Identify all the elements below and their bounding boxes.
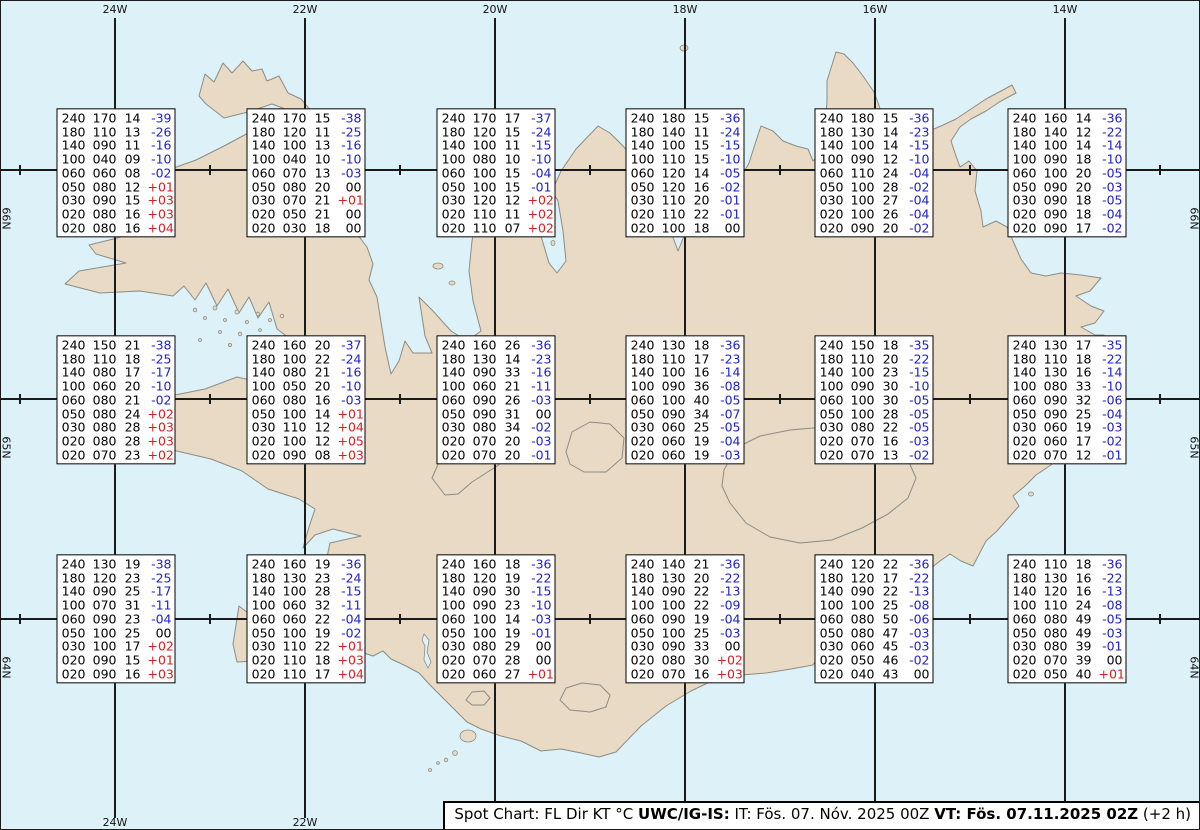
wind-direction: 080 [850,612,875,626]
flight-level: 140 [819,366,844,380]
flight-level: 020 [441,434,466,448]
wind-speed-kt: 15 [693,152,710,166]
wind-direction: 100 [472,180,497,194]
wind-speed-kt: 19 [124,557,141,571]
temperature-c: +05 [338,434,362,448]
wind-direction: 140 [661,557,686,571]
flight-level: 100 [61,152,86,166]
station-data-row: 18011017-23 [630,352,741,366]
temperature-c: -04 [148,612,172,626]
temperature-c: -35 [906,338,930,352]
temperature-c: -16 [338,139,362,153]
station-data-row: 02009017-02 [1012,221,1123,235]
wind-speed-kt: 11 [124,139,141,153]
wind-speed-kt: 20 [882,221,899,235]
wind-speed-kt: 11 [693,125,710,139]
flight-level: 060 [61,612,86,626]
station-data-row: 14012016-13 [1012,585,1123,599]
station-data-row: 06009032-06 [1012,393,1123,407]
flight-level: 060 [819,393,844,407]
station-data-row: 02009008+03 [251,448,362,462]
temperature-c: 00 [338,207,362,221]
flight-level: 180 [819,352,844,366]
flight-level: 020 [819,653,844,667]
station-data-row: 02011007+02 [441,221,552,235]
station-data-row: 10009030-10 [819,379,930,393]
station-data-row: 02008030+02 [630,653,741,667]
temperature-c: -05 [1099,612,1123,626]
flight-level: 100 [1012,598,1037,612]
wind-speed-kt: 22 [693,598,710,612]
wind-speed-kt: 20 [1075,166,1092,180]
temperature-c: -04 [906,166,930,180]
temperature-c: 00 [1099,653,1123,667]
station-data-row: 02010012+05 [251,434,362,448]
wind-direction: 100 [282,626,307,640]
flight-level: 030 [630,640,655,654]
temperature-c: -04 [717,612,741,626]
station-data-row: 0200702800 [441,653,552,667]
flight-level: 140 [1012,585,1037,599]
station-data-row: 03008028+03 [61,421,172,435]
wind-direction: 090 [661,407,686,421]
wind-speed-kt: 39 [1075,653,1092,667]
wind-speed-kt: 40 [693,393,710,407]
wind-direction: 180 [850,111,875,125]
wind-direction: 060 [92,379,117,393]
flight-level: 030 [251,421,276,435]
wind-speed-kt: 17 [124,640,141,654]
station-data-row: 03009018-05 [1012,194,1123,208]
station-data-row: 14009033-16 [441,366,552,380]
temperature-c: -36 [717,111,741,125]
temperature-c: -03 [1099,626,1123,640]
wind-speed-kt: 19 [693,612,710,626]
wind-speed-kt: 16 [1075,571,1092,585]
wind-speed-kt: 19 [504,571,521,585]
wind-direction: 130 [472,352,497,366]
flight-level: 020 [61,434,86,448]
wind-speed-kt: 25 [124,626,141,640]
wind-direction: 090 [472,585,497,599]
station-data-row: 18014011-24 [630,125,741,139]
wind-direction: 140 [1043,125,1068,139]
wind-direction: 090 [472,598,497,612]
flight-level: 030 [251,194,276,208]
wind-direction: 080 [282,393,307,407]
flight-level: 100 [441,152,466,166]
wind-direction: 130 [1043,338,1068,352]
station-data-row: 24016019-36 [251,557,362,571]
flight-level: 100 [61,379,86,393]
temperature-c: -26 [148,125,172,139]
station-data-row: 02009016+03 [61,667,172,681]
wind-direction: 080 [1043,640,1068,654]
temperature-c: -38 [338,111,362,125]
flight-level: 050 [630,407,655,421]
temperature-c: +01 [1099,667,1123,681]
wind-direction: 070 [92,598,117,612]
wind-speed-kt: 16 [1075,585,1092,599]
flight-level: 050 [61,180,86,194]
temperature-c: -05 [1099,166,1123,180]
wind-direction: 100 [282,585,307,599]
flight-level: 060 [251,612,276,626]
flight-level: 240 [61,111,86,125]
wind-direction: 040 [850,667,875,681]
flight-level: 030 [630,421,655,435]
wind-speed-kt: 15 [693,111,710,125]
wind-direction: 070 [472,434,497,448]
wind-direction: 150 [92,338,117,352]
station-data-row: 05010028-02 [819,180,930,194]
wind-direction: 090 [1043,407,1068,421]
footer-segment-1: UWC/IG-IS: [638,805,730,823]
wind-direction: 070 [850,448,875,462]
wind-direction: 090 [1043,221,1068,235]
wind-direction: 130 [850,125,875,139]
station-data-row: 05010028-05 [819,407,930,421]
station-data-row: 05009020-03 [1012,180,1123,194]
station-data-row: 24017015-38 [251,111,362,125]
station-data-row: 02011017+04 [251,667,362,681]
wind-direction: 180 [661,111,686,125]
station-data-row: 05009025-04 [1012,407,1123,421]
temperature-c: -10 [528,598,552,612]
station-data-row: 14010015-15 [630,139,741,153]
temperature-c: 00 [528,407,552,421]
station-data-row: 18011018-25 [61,352,172,366]
wind-direction: 120 [92,571,117,585]
wind-direction: 080 [92,180,117,194]
flight-level: 060 [61,166,86,180]
wind-speed-kt: 24 [1075,598,1092,612]
wind-direction: 090 [661,379,686,393]
flight-level: 020 [1012,667,1037,681]
wind-direction: 100 [850,139,875,153]
temperature-c: -22 [906,352,930,366]
flight-level: 050 [1012,407,1037,421]
station-data-row: 02005046-02 [819,653,930,667]
wind-speed-kt: 14 [882,125,899,139]
temperature-c: -22 [906,571,930,585]
temperature-c: -25 [148,571,172,585]
wind-speed-kt: 31 [124,598,141,612]
station-data-row: 10010025-08 [819,598,930,612]
wind-speed-kt: 25 [882,598,899,612]
station-data-row: 02007012-01 [1012,448,1123,462]
station-box-14W-66N: 24016014-3618014012-2214010014-141000901… [1008,108,1127,237]
wind-direction: 080 [92,366,117,380]
wind-direction: 090 [1043,207,1068,221]
temperature-c: -22 [1099,571,1123,585]
station-data-row: 06009023-04 [61,612,172,626]
wind-direction: 080 [1043,612,1068,626]
wind-speed-kt: 25 [1075,407,1092,421]
flight-level: 140 [1012,366,1037,380]
wind-direction: 100 [850,407,875,421]
wind-speed-kt: 26 [882,207,899,221]
flight-level: 100 [251,379,276,393]
station-data-row: 18011013-26 [61,125,172,139]
flight-level: 050 [441,626,466,640]
wind-speed-kt: 11 [314,125,331,139]
wind-speed-kt: 30 [504,585,521,599]
station-data-row: 03006019-03 [1012,421,1123,435]
flight-level: 030 [630,194,655,208]
wind-speed-kt: 10 [504,152,521,166]
wind-speed-kt: 17 [1075,338,1092,352]
wind-speed-kt: 19 [314,626,331,640]
station-data-row: 05010015-01 [441,180,552,194]
wind-direction: 060 [1043,434,1068,448]
wind-direction: 090 [850,379,875,393]
station-data-row: 14008021-16 [251,366,362,380]
wind-direction: 090 [472,366,497,380]
wind-direction: 090 [1043,194,1068,208]
wind-speed-kt: 25 [693,626,710,640]
station-box-16W-64N: 24012022-3618012017-2214009022-131001002… [815,554,934,683]
station-data-row: 03007021+01 [251,194,362,208]
temperature-c: +03 [148,207,172,221]
temperature-c: +04 [148,221,172,235]
wind-direction: 090 [661,585,686,599]
station-data-row: 18012023-25 [61,571,172,585]
temperature-c: +04 [338,421,362,435]
temperature-c: -24 [338,352,362,366]
flight-level: 020 [1012,207,1037,221]
temperature-c: -15 [338,585,362,599]
wind-speed-kt: 12 [882,152,899,166]
station-data-row: 24017014-39 [61,111,172,125]
flight-level: 140 [630,585,655,599]
wind-speed-kt: 17 [1075,434,1092,448]
wind-direction: 090 [472,393,497,407]
station-data-row: 14009025-17 [61,585,172,599]
temperature-c: -03 [338,166,362,180]
flight-level: 180 [251,125,276,139]
wind-speed-kt: 13 [124,125,141,139]
wind-direction: 070 [1043,653,1068,667]
wind-speed-kt: 29 [504,640,521,654]
wind-direction: 080 [472,152,497,166]
wind-direction: 090 [92,585,117,599]
wind-direction: 090 [92,653,117,667]
wind-speed-kt: 22 [314,352,331,366]
station-data-row: 10009023-10 [441,598,552,612]
wind-speed-kt: 47 [882,626,899,640]
wind-speed-kt: 22 [882,585,899,599]
wind-direction: 100 [472,166,497,180]
flight-level: 020 [1012,448,1037,462]
wind-direction: 120 [850,557,875,571]
station-data-row: 06009026-03 [441,393,552,407]
temperature-c: -08 [1099,598,1123,612]
station-data-row: 0300903300 [630,640,741,654]
wind-direction: 060 [661,434,686,448]
temperature-c: -01 [1099,448,1123,462]
wind-direction: 100 [472,612,497,626]
wind-speed-kt: 32 [1075,393,1092,407]
wind-speed-kt: 20 [314,379,331,393]
chart-legend-bar: Spot Chart: FL Dir KT °C UWC/IG-IS: IT: … [443,801,1200,830]
flight-level: 020 [251,221,276,235]
flight-level: 240 [819,557,844,571]
wind-direction: 110 [661,352,686,366]
temperature-c: 00 [717,221,741,235]
flight-level: 050 [251,180,276,194]
wind-speed-kt: 08 [314,448,331,462]
flight-level: 140 [441,585,466,599]
wind-speed-kt: 16 [693,366,710,380]
flight-level: 020 [251,653,276,667]
station-data-row: 06006022-04 [251,612,362,626]
wind-speed-kt: 18 [882,338,899,352]
wind-speed-kt: 32 [314,598,331,612]
temperature-c: +01 [338,640,362,654]
flight-level: 140 [630,366,655,380]
wind-speed-kt: 11 [504,139,521,153]
wind-direction: 100 [661,598,686,612]
flight-level: 050 [819,626,844,640]
wind-speed-kt: 20 [504,434,521,448]
flight-level: 180 [819,125,844,139]
wind-direction: 110 [282,421,307,435]
wind-speed-kt: 14 [504,612,521,626]
station-data-row: 18012011-25 [251,125,362,139]
station-data-row: 0201001800 [630,221,741,235]
flight-level: 240 [630,111,655,125]
temperature-c: -11 [148,598,172,612]
station-data-row: 10006021-11 [441,379,552,393]
flight-level: 060 [1012,166,1037,180]
wind-speed-kt: 20 [314,180,331,194]
station-data-row: 0200301800 [251,221,362,235]
flight-level: 140 [441,366,466,380]
wind-speed-kt: 22 [882,421,899,435]
station-data-row: 10006020-10 [61,379,172,393]
temperature-c: -16 [148,139,172,153]
wind-direction: 090 [92,194,117,208]
wind-speed-kt: 13 [882,448,899,462]
wind-direction: 090 [850,221,875,235]
temperature-c: -11 [528,379,552,393]
temperature-c: 00 [528,653,552,667]
station-data-row: 14009011-16 [61,139,172,153]
station-box-16W-65N: 24015018-3518011020-2214010023-151000903… [815,335,934,464]
flight-level: 100 [441,598,466,612]
station-data-row: 10006032-11 [251,598,362,612]
station-box-14W-64N: 24011018-3618013016-2214012016-131001102… [1008,554,1127,683]
temperature-c: -14 [717,366,741,380]
wind-direction: 130 [1043,571,1068,585]
flight-level: 180 [61,352,86,366]
temperature-c: -23 [906,125,930,139]
temperature-c: -05 [717,166,741,180]
wind-speed-kt: 36 [693,379,710,393]
wind-speed-kt: 21 [124,338,141,352]
temperature-c: -01 [528,180,552,194]
wind-direction: 130 [661,338,686,352]
station-data-row: 14010016-14 [630,366,741,380]
wind-speed-kt: 40 [1075,667,1092,681]
station-box-20W-64N: 24016018-3618012019-2214009030-151000902… [437,554,556,683]
temperature-c: -03 [717,448,741,462]
wind-speed-kt: 33 [504,366,521,380]
wind-direction: 100 [282,407,307,421]
flight-level: 030 [61,421,86,435]
station-box-14W-65N: 24013017-3518011018-2214013016-141000803… [1008,335,1127,464]
temperature-c: -10 [148,379,172,393]
wind-direction: 150 [850,338,875,352]
flight-level: 100 [630,152,655,166]
wind-direction: 090 [661,640,686,654]
flight-level: 050 [819,407,844,421]
temperature-c: -38 [148,557,172,571]
flight-level: 060 [251,393,276,407]
station-box-24W-66N: 24017014-3918011013-2614009011-161000400… [57,108,176,237]
station-data-row: 18013023-24 [251,571,362,585]
temperature-c: -23 [528,352,552,366]
temperature-c: -08 [906,598,930,612]
flight-level: 180 [441,125,466,139]
temperature-c: -04 [906,194,930,208]
wind-direction: 130 [1043,366,1068,380]
wind-speed-kt: 10 [314,152,331,166]
temperature-c: -13 [906,585,930,599]
flight-level: 100 [251,598,276,612]
wind-speed-kt: 20 [882,352,899,366]
wind-speed-kt: 20 [124,379,141,393]
flight-level: 020 [61,448,86,462]
station-data-row: 05010019-01 [441,626,552,640]
wind-direction: 130 [661,571,686,585]
wind-direction: 100 [92,640,117,654]
flight-level: 020 [819,221,844,235]
flight-level: 060 [61,393,86,407]
wind-direction: 100 [1043,139,1068,153]
flight-level: 140 [819,139,844,153]
spot-chart-weather-map: 24W24W22W22W20W20W18W18W16W16W14W14W66N6… [0,0,1200,830]
flight-level: 240 [251,557,276,571]
station-data-row: 06008021-02 [61,393,172,407]
temperature-c: -03 [528,393,552,407]
temperature-c: -17 [148,366,172,380]
temperature-c: -02 [717,180,741,194]
temperature-c: -02 [338,626,362,640]
station-data-row: 14009030-15 [441,585,552,599]
wind-direction: 080 [1043,379,1068,393]
flight-level: 100 [819,152,844,166]
temperature-c: -36 [906,557,930,571]
flight-level: 240 [819,111,844,125]
flight-level: 030 [819,194,844,208]
wind-speed-kt: 16 [124,207,141,221]
wind-speed-kt: 21 [314,207,331,221]
wind-direction: 100 [850,194,875,208]
station-data-row: 10009012-10 [819,152,930,166]
temperature-c: -04 [1099,407,1123,421]
flight-level: 240 [441,557,466,571]
station-data-row: 05008047-03 [819,626,930,640]
station-data-row: 02008016+04 [61,221,172,235]
temperature-c: -13 [1099,585,1123,599]
station-data-row: 03010027-04 [819,194,930,208]
station-data-row: 24013019-38 [61,557,172,571]
wind-direction: 130 [92,557,117,571]
station-data-row: 02007016-03 [819,434,930,448]
temperature-c: 00 [338,180,362,194]
